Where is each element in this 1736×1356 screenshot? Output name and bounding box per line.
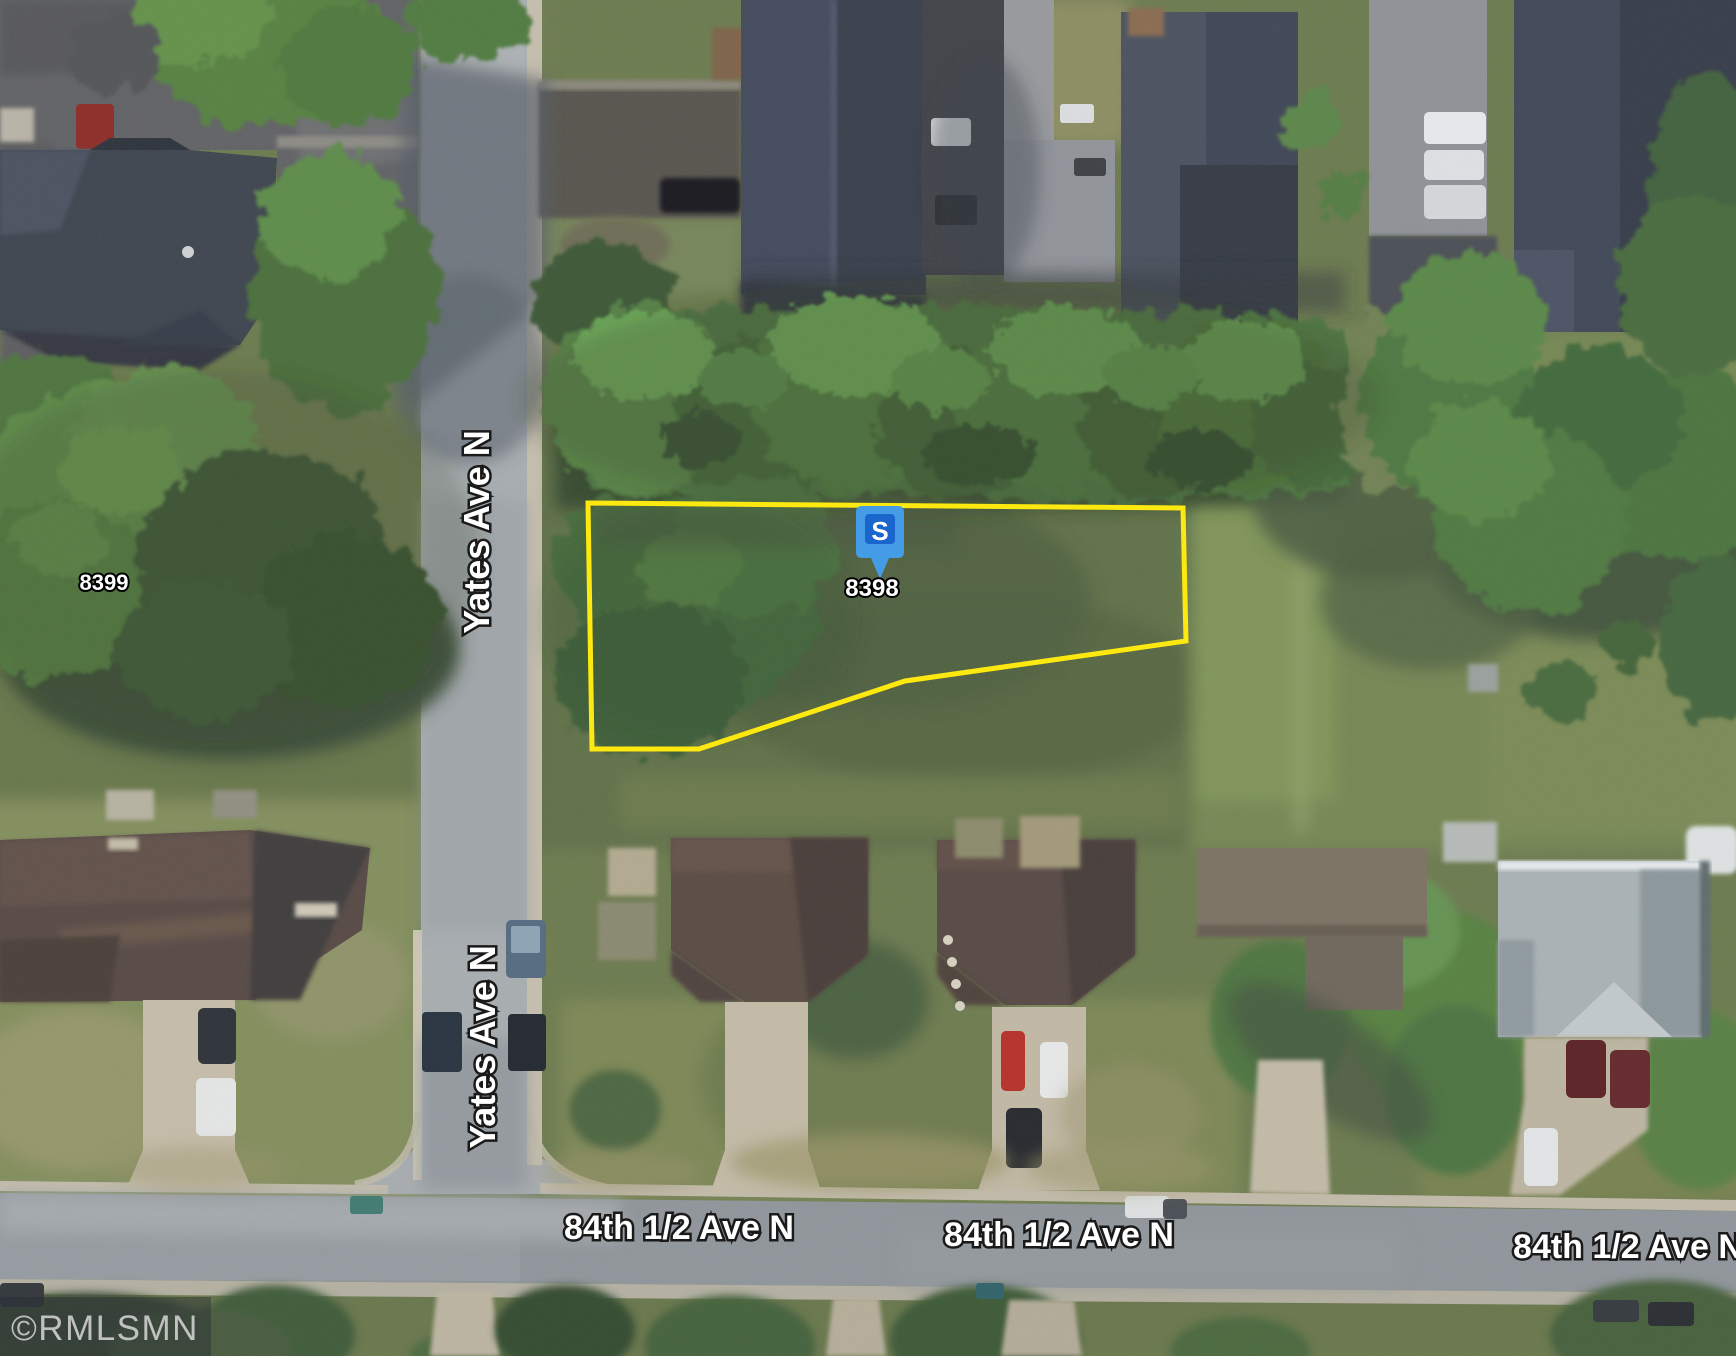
svg-text:84th 1/2 Ave N: 84th 1/2 Ave N [944, 1216, 1174, 1254]
svg-text:©RMLSMN: ©RMLSMN [11, 1309, 199, 1348]
svg-text:84th 1/2 Ave N: 84th 1/2 Ave N [564, 1209, 794, 1247]
svg-text:S: S [871, 516, 888, 546]
svg-text:84th 1/2 Ave N: 84th 1/2 Ave N [1513, 1228, 1736, 1266]
svg-text:8398: 8398 [845, 575, 898, 602]
svg-text:8399: 8399 [80, 570, 129, 595]
svg-text:Yates Ave N: Yates Ave N [462, 945, 503, 1148]
svg-text:Yates Ave N: Yates Ave N [456, 430, 497, 633]
